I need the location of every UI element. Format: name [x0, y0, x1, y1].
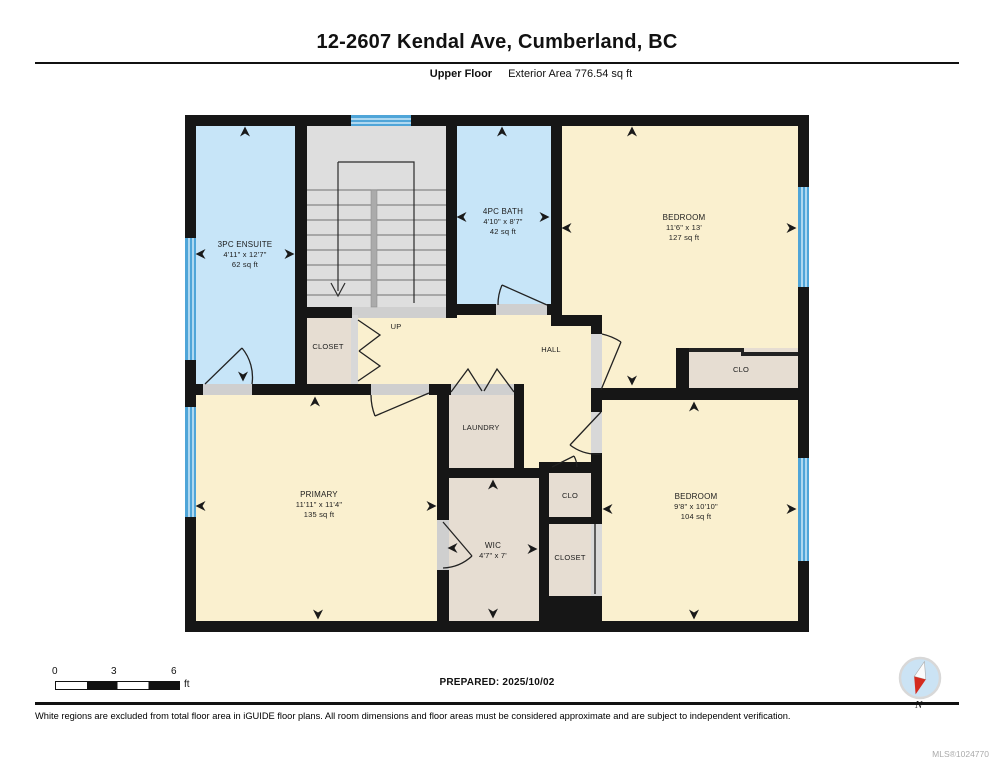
room-label-up: UP — [336, 322, 456, 332]
room-label-primary: PRIMARY 11'11" x 11'4" 135 sq ft — [259, 490, 379, 520]
room-label-hall: HALL — [491, 345, 611, 355]
room-label-closet-bottom: CLOSET — [510, 553, 630, 563]
scale-tick-6: 6 — [171, 666, 191, 677]
disclaimer-text: White regions are excluded from total fl… — [35, 711, 791, 721]
page-title: 12-2607 Kendal Ave, Cumberland, BC — [0, 31, 994, 54]
footer-divider — [35, 702, 959, 705]
floor-plan: 3PC ENSUITE 4'11" x 12'7" 62 sq ft 4PC B… — [185, 115, 809, 632]
floor-plan-page: 12-2607 Kendal Ave, Cumberland, BC Upper… — [0, 0, 994, 768]
scale-tick-3: 3 — [111, 666, 131, 677]
room-label-clo-mid: CLO — [510, 491, 630, 501]
room-label-ensuite: 3PC ENSUITE 4'11" x 12'7" 62 sq ft — [185, 240, 305, 270]
room-label-closet-top: CLOSET — [268, 342, 388, 352]
scale-tick-0: 0 — [52, 666, 72, 677]
room-label-laundry: LAUNDRY — [421, 423, 541, 433]
room-label-bedroom-bottom: BEDROOM 9'8" x 10'10" 104 sq ft — [636, 492, 756, 522]
prepared-date: PREPARED: 2025/10/02 — [0, 677, 994, 688]
floor-subtitle: Upper FloorExterior Area 776.54 sq ft — [68, 68, 994, 80]
floor-label: Upper Floor — [430, 68, 492, 80]
room-label-clo-top: CLO — [681, 365, 801, 375]
title-divider — [35, 62, 959, 64]
room-label-bath: 4PC BATH 4'10" x 8'7" 42 sq ft — [443, 207, 563, 237]
room-label-bedroom-top: BEDROOM 11'6" x 13' 127 sq ft — [624, 213, 744, 243]
mls-number: MLS®1024770 — [932, 749, 989, 759]
exterior-area-label: Exterior Area 776.54 sq ft — [508, 68, 632, 80]
